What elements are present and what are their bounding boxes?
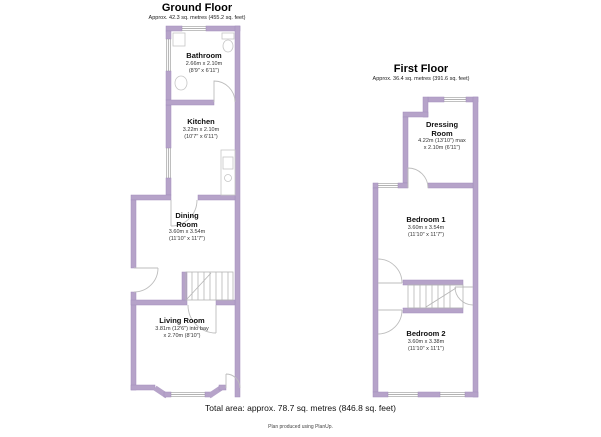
room-name: Bedroom 2	[371, 330, 481, 339]
room-dims: 3.22m x 2.10m	[146, 127, 256, 134]
room-dims: (10'7" x 6'11")	[146, 134, 256, 141]
ground-floor-area: Approx. 42.3 sq. metres (455.2 sq. feet)	[149, 15, 246, 21]
room-dims: (11'10" x 11'7")	[132, 236, 242, 243]
credit-text: Plan produced using PlanUp.	[0, 424, 601, 430]
room-dims: 3.60m x 3.54m	[132, 229, 242, 236]
total-area-text: Total area: approx. 78.7 sq. metres (846…	[0, 403, 601, 413]
bedroom-1-label: Bedroom 1 3.60m x 3.54m (11'10" x 11'7")	[371, 216, 481, 238]
room-name: Bathroom	[149, 52, 259, 61]
ground-floor-header: Ground Floor Approx. 42.3 sq. metres (45…	[149, 2, 246, 21]
kitchen-fixtures	[221, 150, 235, 195]
ground-floor-stairs	[186, 272, 233, 300]
room-dims: (8'9" x 6'11")	[149, 68, 259, 75]
room-name: Bedroom 1	[371, 216, 481, 225]
room-dims: x 2.10m (6'11")	[387, 145, 497, 152]
room-dims: (11'10" x 11'7")	[371, 232, 481, 239]
kitchen-hob-icon	[225, 175, 232, 182]
shower-icon	[173, 33, 185, 46]
room-dims: x 2.70m (8'10")	[127, 333, 237, 340]
room-name: Kitchen	[146, 118, 256, 127]
first-floor-area: Approx. 36.4 sq. metres (391.6 sq. feet)	[373, 76, 470, 82]
room-dims: 2.66m x 2.10m	[149, 61, 259, 68]
room-name: Living Room	[159, 317, 205, 326]
room-dims: 3.60m x 3.38m	[371, 339, 481, 346]
first-floor-header: First Floor Approx. 36.4 sq. metres (391…	[373, 63, 470, 82]
room-dims: (11'10" x 11'1")	[371, 346, 481, 353]
room-name: Dining Room	[164, 212, 210, 229]
toilet-icon	[222, 33, 234, 39]
floorplan-canvas	[0, 0, 601, 437]
bathroom-label: Bathroom 2.66m x 2.10m (8'9" x 6'11")	[149, 52, 259, 74]
room-dims: 4.22m (13'10") max	[387, 138, 497, 145]
ground-floor-title: Ground Floor	[149, 2, 246, 14]
room-dims: 3.81m (12'6") into bay	[127, 326, 237, 333]
first-floor-stairs	[408, 285, 463, 308]
dining-room-label: Dining Room 3.60m x 3.54m (11'10" x 11'7…	[132, 212, 242, 243]
basin-icon	[175, 76, 187, 90]
kitchen-label: Kitchen 3.22m x 2.10m (10'7" x 6'11")	[146, 118, 256, 140]
room-dims: 3.60m x 3.54m	[371, 225, 481, 232]
living-room-label: Living Room 3.81m (12'6") into bay x 2.7…	[127, 317, 237, 339]
kitchen-sink-icon	[223, 157, 233, 169]
toilet-bowl-icon	[223, 40, 233, 52]
dressing-room-label: Dressing Room 4.22m (13'10") max x 2.10m…	[387, 121, 497, 152]
bedroom-2-label: Bedroom 2 3.60m x 3.38m (11'10" x 11'1")	[371, 330, 481, 352]
room-name: Dressing Room	[419, 121, 465, 138]
first-floor-title: First Floor	[373, 63, 470, 75]
floorplan-page: Ground Floor Approx. 42.3 sq. metres (45…	[0, 0, 601, 437]
